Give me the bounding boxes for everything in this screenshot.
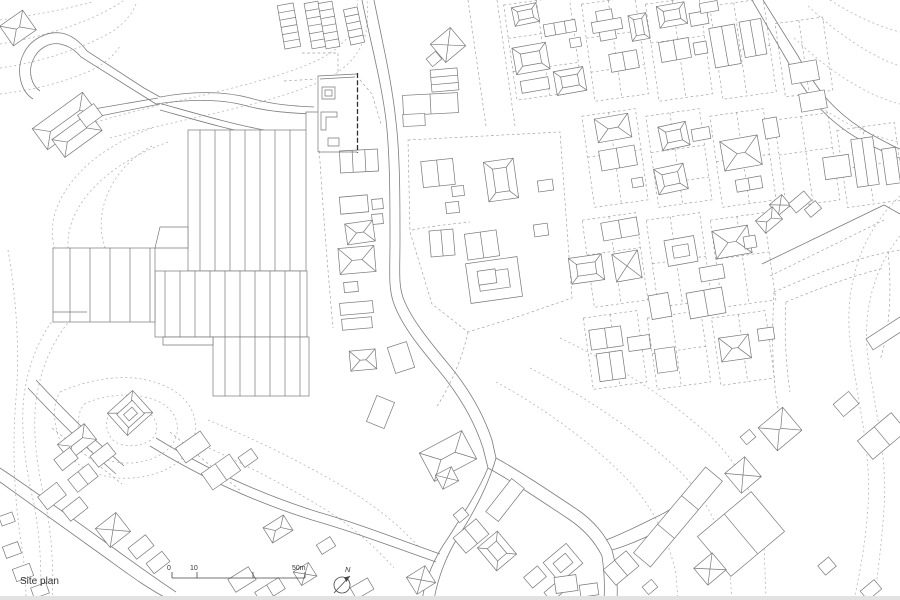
building <box>634 467 723 567</box>
building <box>642 579 658 594</box>
building <box>372 199 384 210</box>
building <box>601 217 640 241</box>
building <box>589 326 623 350</box>
building <box>403 113 426 126</box>
site-plan-page: Site plan 0 10 50m N <box>0 0 900 600</box>
building <box>654 163 689 195</box>
building <box>631 177 643 188</box>
building <box>743 235 757 249</box>
building <box>62 497 88 522</box>
site-plan-svg <box>0 0 900 600</box>
building <box>757 327 775 341</box>
building <box>483 158 518 202</box>
page-bottom-edge <box>0 596 900 600</box>
building <box>339 195 368 214</box>
building <box>718 334 751 362</box>
building <box>691 127 711 142</box>
building <box>699 1 718 14</box>
building <box>316 537 335 555</box>
building <box>90 443 116 468</box>
building <box>464 230 499 260</box>
building <box>725 457 762 494</box>
building <box>818 557 836 575</box>
building <box>568 254 604 284</box>
building <box>648 292 672 319</box>
building <box>176 431 211 463</box>
building <box>453 507 469 522</box>
building <box>342 317 373 331</box>
factory-complex <box>53 112 318 396</box>
building <box>603 551 639 586</box>
building <box>553 67 587 96</box>
building <box>699 264 725 282</box>
lot-blocks <box>504 0 900 389</box>
building <box>739 18 767 57</box>
building <box>693 41 708 55</box>
building <box>406 566 435 595</box>
building <box>524 566 547 588</box>
building <box>343 7 364 45</box>
building <box>554 575 578 594</box>
building <box>654 347 677 374</box>
building <box>344 281 359 292</box>
building <box>823 154 852 179</box>
building <box>452 185 465 196</box>
scale-label-50m: 50m <box>292 565 306 572</box>
project-building <box>318 74 357 152</box>
building <box>429 229 455 257</box>
building <box>740 429 756 444</box>
building <box>628 13 650 42</box>
building <box>511 3 539 27</box>
lot-block <box>775 17 833 97</box>
building <box>709 24 742 68</box>
building <box>537 179 553 192</box>
north-arrow <box>334 576 350 593</box>
building <box>851 137 879 188</box>
building <box>128 535 154 560</box>
building <box>0 10 36 46</box>
building <box>833 391 859 416</box>
building <box>340 301 374 316</box>
building <box>882 147 900 185</box>
building <box>758 407 802 451</box>
building <box>238 448 258 467</box>
building <box>612 250 642 282</box>
building <box>543 19 577 36</box>
scale-label-10: 10 <box>190 565 198 572</box>
building <box>445 201 459 213</box>
building <box>735 176 763 192</box>
building <box>277 3 300 49</box>
building <box>533 223 549 237</box>
building <box>345 220 376 245</box>
building <box>596 350 626 381</box>
plan-title: Site plan <box>20 576 59 587</box>
building <box>591 17 622 33</box>
building <box>857 413 900 460</box>
building <box>387 342 414 374</box>
building <box>338 245 376 274</box>
building <box>430 68 459 92</box>
building <box>720 135 763 171</box>
building <box>594 113 632 143</box>
scale-label-0: 0 <box>167 565 171 572</box>
building <box>486 479 524 522</box>
building <box>2 542 21 559</box>
building <box>520 77 550 94</box>
building <box>372 214 384 225</box>
building <box>866 315 900 350</box>
building <box>68 464 98 493</box>
building <box>263 515 293 543</box>
building <box>609 50 640 73</box>
building <box>349 349 377 371</box>
building <box>366 395 394 428</box>
building <box>656 2 687 29</box>
building <box>788 60 819 85</box>
building <box>95 513 130 548</box>
building <box>38 482 67 509</box>
building <box>599 145 638 171</box>
building <box>569 37 581 48</box>
building <box>627 335 651 352</box>
building <box>421 158 456 187</box>
building <box>658 121 690 150</box>
building <box>664 236 698 267</box>
building <box>403 93 459 116</box>
building <box>686 287 726 319</box>
building <box>201 454 240 490</box>
building <box>762 117 779 139</box>
building <box>228 567 256 592</box>
building <box>0 512 15 526</box>
building <box>512 42 550 74</box>
north-label: N <box>345 565 350 574</box>
building <box>339 149 378 173</box>
building <box>477 269 497 285</box>
